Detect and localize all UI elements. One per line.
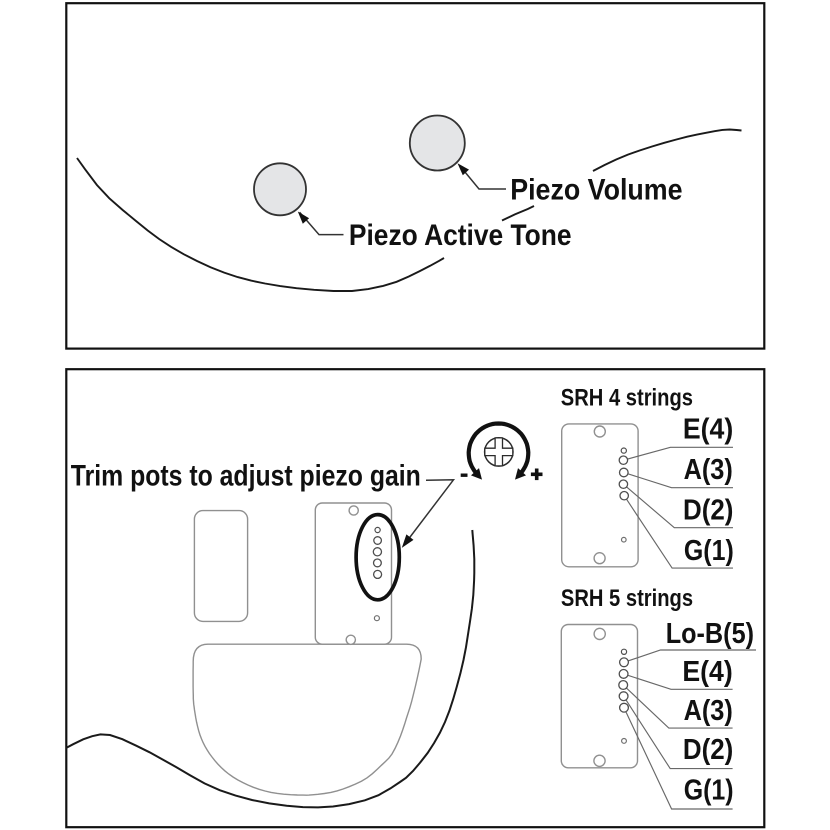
svg-text:SRH 4 strings: SRH 4 strings — [561, 384, 693, 411]
svg-text:E(4): E(4) — [683, 413, 733, 445]
svg-text:G(1): G(1) — [684, 774, 734, 806]
svg-text:A(3): A(3) — [684, 694, 733, 726]
svg-text:A(3): A(3) — [684, 454, 733, 486]
svg-text:Lo-B(5): Lo-B(5) — [666, 618, 754, 650]
svg-text:D(2): D(2) — [683, 733, 733, 765]
svg-text:Piezo Volume: Piezo Volume — [510, 173, 682, 205]
svg-text:Piezo Active Tone: Piezo Active Tone — [349, 219, 572, 252]
svg-text:E(4): E(4) — [682, 655, 732, 687]
svg-text:G(1): G(1) — [684, 534, 734, 566]
svg-text:Trim pots to adjust piezo gain: Trim pots to adjust piezo gain — [71, 458, 421, 492]
svg-text:D(2): D(2) — [683, 493, 733, 525]
svg-text:SRH 5 strings: SRH 5 strings — [561, 584, 693, 611]
